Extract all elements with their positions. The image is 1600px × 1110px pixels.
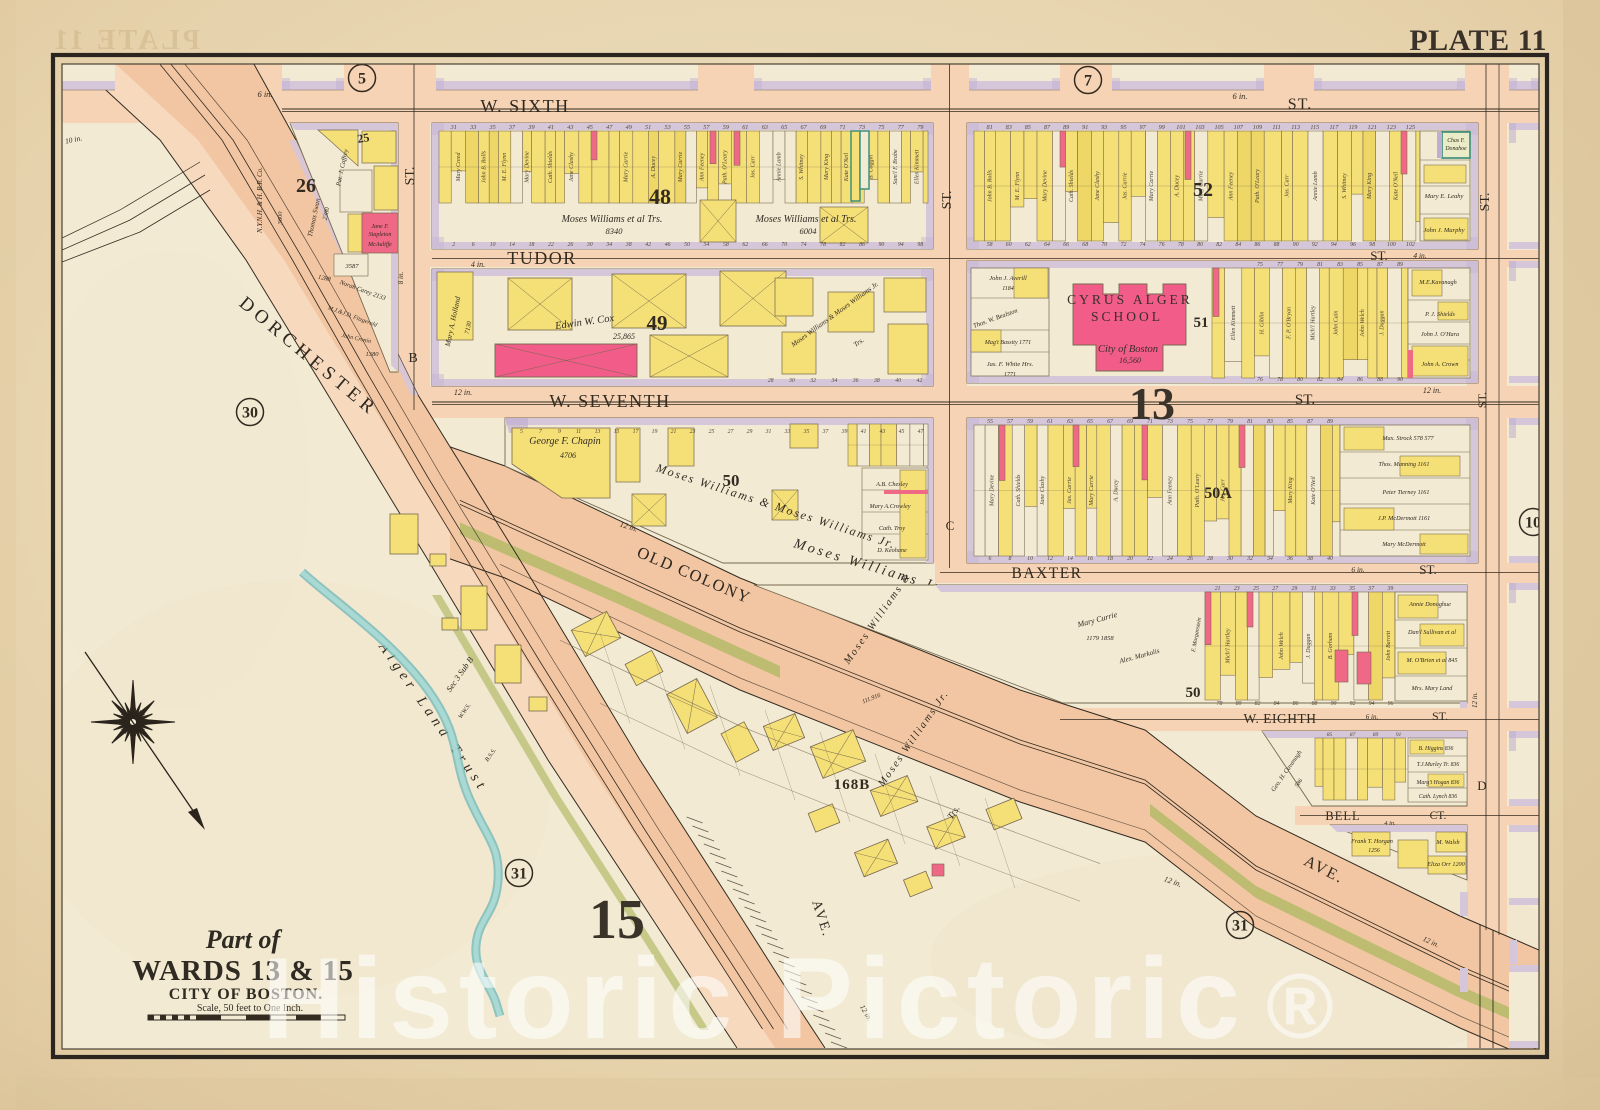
svg-text:6: 6 bbox=[472, 242, 475, 248]
svg-text:Mary Carrie: Mary Carrie bbox=[1149, 170, 1155, 202]
svg-text:F. P. O'Bryan: F. P. O'Bryan bbox=[1286, 307, 1292, 340]
svg-text:34: 34 bbox=[1266, 555, 1273, 562]
svg-text:A. Ducey: A. Ducey bbox=[1114, 479, 1120, 502]
svg-text:119: 119 bbox=[1349, 124, 1358, 131]
svg-text:78: 78 bbox=[1217, 701, 1223, 707]
svg-text:80: 80 bbox=[1236, 701, 1242, 707]
svg-text:45: 45 bbox=[899, 428, 905, 435]
svg-text:40: 40 bbox=[1327, 555, 1333, 562]
svg-text:Mich'l Hartley: Mich'l Hartley bbox=[1311, 305, 1317, 341]
svg-text:ST.: ST. bbox=[940, 191, 955, 210]
svg-text:55: 55 bbox=[684, 124, 690, 131]
svg-text:121: 121 bbox=[1368, 124, 1377, 131]
svg-text:28: 28 bbox=[1207, 556, 1213, 562]
svg-text:85: 85 bbox=[1357, 262, 1363, 268]
svg-text:78: 78 bbox=[1277, 377, 1283, 383]
svg-text:51: 51 bbox=[645, 124, 651, 131]
svg-text:Cath. Troy: Cath. Troy bbox=[879, 525, 905, 532]
svg-text:Ann Feeney: Ann Feeney bbox=[700, 152, 706, 182]
svg-text:12 in.: 12 in. bbox=[454, 388, 472, 397]
svg-text:Stapleton: Stapleton bbox=[369, 232, 392, 238]
svg-text:John B. Rolls: John B. Rolls bbox=[481, 150, 487, 183]
svg-text:Cath. Shields: Cath. Shields bbox=[548, 150, 554, 183]
svg-text:55: 55 bbox=[987, 419, 993, 425]
svg-text:96: 96 bbox=[1350, 242, 1356, 248]
svg-text:105: 105 bbox=[1214, 124, 1223, 131]
svg-text:Mary King: Mary King bbox=[824, 154, 830, 181]
svg-text:80: 80 bbox=[1197, 242, 1203, 248]
svg-text:Mich'l Hartley: Mich'l Hartley bbox=[1225, 628, 1231, 664]
svg-text:Dan'l Sullivan et al: Dan'l Sullivan et al bbox=[1407, 629, 1456, 636]
svg-text:W. SIXTH: W. SIXTH bbox=[480, 96, 569, 116]
svg-text:50: 50 bbox=[684, 242, 690, 248]
svg-text:18: 18 bbox=[1107, 556, 1113, 562]
svg-text:Jos. Carr: Jos. Carr bbox=[750, 155, 756, 178]
svg-text:Kate O'Neil: Kate O'Neil bbox=[1394, 171, 1400, 201]
svg-text:33: 33 bbox=[1329, 586, 1336, 592]
svg-text:ST.: ST. bbox=[1432, 709, 1448, 723]
svg-text:ST.: ST. bbox=[1478, 193, 1493, 212]
svg-text:Mary Devine: Mary Devine bbox=[1042, 170, 1048, 203]
svg-text:62: 62 bbox=[1025, 242, 1031, 248]
svg-text:69: 69 bbox=[820, 124, 826, 131]
svg-text:75: 75 bbox=[1187, 419, 1193, 425]
svg-text:Eliza Orr 1200: Eliza Orr 1200 bbox=[1426, 861, 1465, 868]
svg-text:J.P. McDermott 1161: J.P. McDermott 1161 bbox=[1378, 515, 1430, 522]
svg-text:Mrs. Mary Land: Mrs. Mary Land bbox=[1411, 685, 1454, 692]
svg-text:12 in.: 12 in. bbox=[1471, 692, 1479, 708]
svg-text:63: 63 bbox=[1067, 419, 1073, 425]
svg-text:20: 20 bbox=[1127, 556, 1133, 562]
svg-text:McAuliffe: McAuliffe bbox=[367, 241, 392, 248]
svg-text:40: 40 bbox=[895, 377, 901, 384]
svg-text:Peter Tierney 1161: Peter Tierney 1161 bbox=[1382, 489, 1430, 496]
svg-text:30: 30 bbox=[586, 242, 593, 248]
svg-text:Ellen Kimmett: Ellen Kimmett bbox=[1231, 305, 1237, 341]
svg-text:26: 26 bbox=[1187, 556, 1193, 562]
svg-text:74: 74 bbox=[1140, 241, 1146, 248]
svg-text:91: 91 bbox=[1396, 732, 1402, 738]
svg-text:36: 36 bbox=[852, 378, 859, 384]
svg-text:91: 91 bbox=[1082, 124, 1088, 131]
svg-text:32: 32 bbox=[809, 378, 816, 384]
svg-text:86: 86 bbox=[859, 242, 865, 248]
svg-text:29: 29 bbox=[747, 429, 753, 435]
svg-text:ST.: ST. bbox=[403, 167, 418, 186]
svg-text:George F. Chapin: George F. Chapin bbox=[529, 436, 600, 447]
svg-text:Mary E. Leahy: Mary E. Leahy bbox=[1424, 193, 1464, 200]
svg-text:79: 79 bbox=[917, 124, 923, 131]
svg-text:ST.: ST. bbox=[1288, 96, 1312, 113]
svg-text:Donahoe: Donahoe bbox=[1444, 146, 1467, 152]
svg-text:100: 100 bbox=[1387, 242, 1396, 248]
svg-text:83: 83 bbox=[1267, 419, 1273, 425]
svg-text:84: 84 bbox=[1337, 376, 1343, 383]
svg-text:6 in.: 6 in. bbox=[1232, 91, 1247, 101]
svg-text:43: 43 bbox=[567, 124, 573, 131]
svg-text:79: 79 bbox=[1297, 262, 1303, 268]
svg-text:29: 29 bbox=[1292, 586, 1298, 592]
svg-text:48: 48 bbox=[649, 184, 671, 209]
svg-text:13: 13 bbox=[1129, 378, 1175, 429]
svg-text:Moses Williams et al Trs.: Moses Williams et al Trs. bbox=[755, 214, 857, 225]
svg-text:Cath. Shields: Cath. Shields bbox=[1069, 169, 1075, 202]
svg-text:1771: 1771 bbox=[1004, 372, 1016, 378]
svg-text:7: 7 bbox=[1084, 72, 1092, 89]
svg-text:5: 5 bbox=[520, 429, 523, 435]
svg-text:90: 90 bbox=[1331, 701, 1337, 707]
svg-text:Mary Devine: Mary Devine bbox=[989, 474, 995, 507]
svg-text:83: 83 bbox=[1006, 124, 1012, 131]
svg-text:68: 68 bbox=[1082, 242, 1088, 248]
svg-text:97: 97 bbox=[1140, 124, 1147, 131]
svg-text:96: 96 bbox=[1388, 701, 1394, 707]
svg-text:61: 61 bbox=[1047, 419, 1053, 425]
svg-text:49: 49 bbox=[626, 124, 632, 131]
svg-text:84: 84 bbox=[1235, 241, 1241, 248]
svg-text:101: 101 bbox=[1176, 124, 1185, 131]
svg-text:73: 73 bbox=[859, 124, 865, 131]
svg-text:37: 37 bbox=[1367, 586, 1375, 592]
svg-text:63: 63 bbox=[762, 124, 768, 131]
svg-text:32: 32 bbox=[1246, 556, 1253, 562]
svg-text:89: 89 bbox=[1397, 262, 1403, 268]
svg-text:D: D bbox=[1477, 778, 1486, 793]
svg-text:SCHOOL: SCHOOL bbox=[1091, 309, 1163, 324]
svg-text:54: 54 bbox=[704, 241, 710, 248]
svg-text:John A. Crown: John A. Crown bbox=[1422, 361, 1459, 368]
svg-text:34: 34 bbox=[605, 241, 612, 248]
svg-text:2: 2 bbox=[452, 242, 455, 248]
svg-text:10: 10 bbox=[1027, 556, 1033, 562]
svg-text:99: 99 bbox=[1159, 124, 1165, 131]
svg-text:41: 41 bbox=[861, 428, 867, 435]
svg-text:1179 1858: 1179 1858 bbox=[1086, 635, 1114, 642]
svg-text:39: 39 bbox=[527, 124, 534, 131]
svg-text:A. Ducey: A. Ducey bbox=[1174, 175, 1180, 198]
svg-text:62: 62 bbox=[742, 242, 748, 248]
svg-text:70: 70 bbox=[781, 242, 787, 248]
svg-text:CT.: CT. bbox=[1430, 810, 1447, 822]
svg-text:M. E. Flynn: M. E. Flynn bbox=[502, 153, 508, 183]
svg-text:93: 93 bbox=[1101, 124, 1107, 131]
svg-text:31: 31 bbox=[450, 124, 457, 131]
svg-text:John B. Rolls: John B. Rolls bbox=[988, 169, 994, 202]
svg-text:N.Y.N.H. & H. R.R. Co.: N.Y.N.H. & H. R.R. Co. bbox=[256, 167, 264, 234]
svg-text:49: 49 bbox=[647, 311, 668, 335]
svg-text:81: 81 bbox=[1317, 262, 1323, 268]
svg-text:123: 123 bbox=[1387, 124, 1396, 131]
svg-text:113: 113 bbox=[1291, 124, 1300, 131]
svg-text:88: 88 bbox=[1377, 377, 1383, 383]
svg-text:39: 39 bbox=[1387, 586, 1394, 592]
svg-text:Jos. Carr: Jos. Carr bbox=[1285, 174, 1291, 197]
svg-text:B. Gorham: B. Gorham bbox=[1328, 632, 1334, 659]
svg-text:ST.: ST. bbox=[1475, 392, 1489, 408]
svg-text:95: 95 bbox=[1120, 124, 1126, 131]
svg-text:9: 9 bbox=[558, 429, 561, 435]
svg-text:71: 71 bbox=[839, 124, 845, 131]
svg-text:50: 50 bbox=[1186, 685, 1201, 701]
svg-text:87: 87 bbox=[1350, 732, 1356, 738]
svg-text:31: 31 bbox=[1232, 917, 1248, 934]
svg-text:P. J. Shields: P. J. Shields bbox=[1424, 311, 1455, 318]
svg-text:M. E. Flynn: M. E. Flynn bbox=[1015, 172, 1021, 202]
svg-text:Kate O'Neil: Kate O'Neil bbox=[844, 152, 850, 182]
svg-text:16: 16 bbox=[1087, 556, 1093, 562]
svg-text:111: 111 bbox=[1272, 124, 1280, 131]
svg-text:Mary A.Crowley: Mary A.Crowley bbox=[869, 503, 911, 510]
svg-text:89: 89 bbox=[1373, 732, 1379, 738]
svg-text:72: 72 bbox=[1121, 242, 1127, 248]
svg-text:85: 85 bbox=[1287, 419, 1293, 425]
svg-text:M.E.Kavanagh: M.E.Kavanagh bbox=[1418, 279, 1456, 286]
svg-text:ST.: ST. bbox=[1295, 392, 1315, 408]
svg-text:64: 64 bbox=[1044, 241, 1050, 248]
svg-text:5: 5 bbox=[358, 70, 366, 87]
svg-text:22: 22 bbox=[1147, 556, 1153, 562]
svg-text:26: 26 bbox=[296, 175, 316, 197]
svg-text:8: 8 bbox=[1009, 556, 1012, 562]
svg-text:Cath. Lynch 836: Cath. Lynch 836 bbox=[1419, 794, 1457, 800]
svg-text:6 in.: 6 in. bbox=[257, 89, 272, 99]
svg-text:®: ® bbox=[1266, 956, 1334, 1058]
svg-text:75: 75 bbox=[878, 124, 884, 131]
svg-text:H. Giblin: H. Giblin bbox=[1259, 312, 1265, 336]
svg-text:30: 30 bbox=[242, 404, 258, 421]
svg-text:125: 125 bbox=[1406, 124, 1415, 131]
svg-text:John J. Murphy: John J. Murphy bbox=[1424, 227, 1465, 234]
svg-text:1184: 1184 bbox=[1002, 285, 1014, 292]
svg-text:Mary King: Mary King bbox=[1367, 173, 1373, 200]
svg-text:82: 82 bbox=[1255, 701, 1261, 707]
svg-text:89: 89 bbox=[1327, 419, 1333, 425]
svg-text:85: 85 bbox=[1327, 732, 1333, 738]
svg-text:3600: 3600 bbox=[277, 211, 284, 226]
svg-text:94: 94 bbox=[898, 241, 904, 248]
svg-text:70: 70 bbox=[1101, 242, 1107, 248]
svg-text:4706: 4706 bbox=[560, 451, 576, 460]
svg-text:12 in.: 12 in. bbox=[1423, 386, 1441, 395]
svg-text:1256: 1256 bbox=[1368, 848, 1380, 854]
svg-text:66: 66 bbox=[762, 242, 768, 248]
svg-text:107: 107 bbox=[1234, 124, 1244, 131]
svg-text:16,560: 16,560 bbox=[1119, 356, 1141, 365]
svg-text:John J. O'Hara: John J. O'Hara bbox=[1421, 331, 1459, 338]
svg-text:25: 25 bbox=[1253, 586, 1259, 592]
svg-text:59: 59 bbox=[1027, 419, 1033, 425]
svg-text:89: 89 bbox=[1063, 124, 1069, 131]
svg-text:37: 37 bbox=[822, 429, 830, 435]
svg-text:115: 115 bbox=[1310, 124, 1319, 131]
svg-text:52: 52 bbox=[1193, 179, 1213, 201]
svg-text:C: C bbox=[946, 518, 955, 533]
svg-text:109: 109 bbox=[1253, 124, 1262, 131]
svg-text:3587: 3587 bbox=[345, 263, 360, 270]
svg-text:8 in.: 8 in. bbox=[397, 272, 405, 285]
svg-text:Mary Carrie: Mary Carrie bbox=[1089, 475, 1095, 507]
svg-text:42: 42 bbox=[645, 241, 651, 248]
svg-text:86: 86 bbox=[1255, 242, 1261, 248]
svg-text:Annie Lamb: Annie Lamb bbox=[777, 152, 783, 182]
svg-text:Frank T. Horgan: Frank T. Horgan bbox=[1350, 838, 1393, 845]
svg-text:14: 14 bbox=[509, 241, 515, 248]
svg-text:39: 39 bbox=[841, 429, 848, 435]
svg-text:43: 43 bbox=[880, 428, 886, 435]
svg-text:57: 57 bbox=[703, 124, 710, 131]
svg-text:Thos. Manning 1161: Thos. Manning 1161 bbox=[1379, 461, 1430, 468]
svg-text:78: 78 bbox=[820, 242, 826, 248]
svg-text:83: 83 bbox=[1337, 262, 1343, 268]
svg-text:117: 117 bbox=[1329, 124, 1339, 131]
svg-text:33: 33 bbox=[469, 124, 476, 131]
svg-text:25,865: 25,865 bbox=[613, 332, 635, 341]
svg-text:76: 76 bbox=[1257, 377, 1263, 383]
svg-text:1380: 1380 bbox=[366, 351, 380, 358]
svg-text:28: 28 bbox=[768, 378, 774, 384]
svg-text:ST.: ST. bbox=[1419, 562, 1436, 577]
svg-text:75: 75 bbox=[1257, 262, 1263, 268]
svg-text:24: 24 bbox=[1167, 555, 1173, 562]
svg-text:59: 59 bbox=[723, 124, 729, 131]
svg-text:21: 21 bbox=[671, 429, 677, 435]
svg-text:15: 15 bbox=[614, 429, 620, 435]
svg-text:19: 19 bbox=[652, 429, 658, 435]
svg-text:50A: 50A bbox=[1204, 485, 1232, 502]
svg-text:31: 31 bbox=[511, 865, 527, 882]
svg-text:ST.: ST. bbox=[1370, 248, 1387, 263]
svg-text:A.B. Chesley: A.B. Chesley bbox=[875, 481, 908, 488]
svg-text:B: B bbox=[408, 351, 417, 366]
svg-text:25: 25 bbox=[356, 130, 370, 146]
svg-text:Annie Lamb: Annie Lamb bbox=[1313, 171, 1319, 201]
svg-text:Annie Donoghue: Annie Donoghue bbox=[1408, 601, 1451, 608]
svg-text:Mary Carrie: Mary Carrie bbox=[624, 151, 630, 183]
svg-text:66: 66 bbox=[1063, 242, 1069, 248]
svg-text:74: 74 bbox=[801, 241, 807, 248]
svg-text:82: 82 bbox=[1216, 242, 1222, 248]
svg-text:Path. O'Leary: Path. O'Leary bbox=[1195, 473, 1201, 508]
svg-text:88: 88 bbox=[1274, 242, 1280, 248]
svg-text:W. EIGHTH: W. EIGHTH bbox=[1244, 711, 1317, 726]
svg-text:82: 82 bbox=[840, 242, 846, 248]
svg-text:10: 10 bbox=[490, 242, 496, 248]
svg-text:6 in.: 6 in. bbox=[1351, 565, 1364, 574]
svg-text:61: 61 bbox=[742, 124, 748, 131]
svg-text:60: 60 bbox=[1006, 242, 1012, 248]
svg-text:23: 23 bbox=[1234, 586, 1240, 592]
svg-text:94: 94 bbox=[1369, 700, 1375, 707]
svg-text:8340: 8340 bbox=[606, 226, 624, 236]
svg-text:6 in.: 6 in. bbox=[1366, 713, 1379, 721]
svg-text:85: 85 bbox=[1025, 124, 1031, 131]
svg-text:168B: 168B bbox=[834, 777, 871, 793]
svg-text:Mary McDermott: Mary McDermott bbox=[1381, 541, 1426, 548]
svg-text:PLATE 11: PLATE 11 bbox=[51, 25, 200, 56]
svg-text:6: 6 bbox=[989, 556, 992, 562]
svg-text:98: 98 bbox=[917, 242, 923, 248]
svg-text:12: 12 bbox=[1047, 556, 1053, 562]
svg-text:78: 78 bbox=[1178, 242, 1184, 248]
svg-text:88: 88 bbox=[1312, 701, 1318, 707]
svg-text:33: 33 bbox=[784, 429, 791, 435]
svg-text:W. SEVENTH: W. SEVENTH bbox=[549, 391, 670, 411]
svg-text:CYRUS ALGER: CYRUS ALGER bbox=[1067, 292, 1193, 307]
svg-text:38: 38 bbox=[625, 242, 632, 248]
svg-text:58: 58 bbox=[723, 242, 729, 248]
svg-text:21: 21 bbox=[1215, 586, 1221, 592]
svg-text:30: 30 bbox=[1226, 556, 1233, 562]
svg-text:103: 103 bbox=[1195, 124, 1204, 131]
svg-text:36: 36 bbox=[1286, 556, 1293, 562]
svg-text:86: 86 bbox=[1293, 701, 1299, 707]
svg-text:42: 42 bbox=[917, 377, 923, 384]
svg-text:Ann Feeney: Ann Feeney bbox=[1228, 171, 1234, 201]
svg-text:Cath. Shields: Cath. Shields bbox=[1016, 474, 1022, 507]
svg-text:M. O'Brien et al 845: M. O'Brien et al 845 bbox=[1406, 657, 1458, 664]
svg-text:PLATE 11: PLATE 11 bbox=[1409, 24, 1547, 57]
svg-text:M. Walsh: M. Walsh bbox=[1435, 839, 1459, 846]
svg-text:Path. O'Leary: Path. O'Leary bbox=[1255, 169, 1261, 204]
svg-text:87: 87 bbox=[1044, 124, 1051, 131]
svg-text:Historic Pictoric: Historic Pictoric bbox=[262, 935, 1246, 1063]
svg-text:25: 25 bbox=[709, 429, 715, 435]
svg-text:41: 41 bbox=[548, 124, 554, 131]
svg-text:86: 86 bbox=[1357, 377, 1363, 383]
svg-text:Moses Williams et al Trs.: Moses Williams et al Trs. bbox=[561, 214, 663, 225]
svg-text:35: 35 bbox=[1348, 586, 1355, 592]
svg-text:47: 47 bbox=[606, 124, 613, 131]
svg-text:67: 67 bbox=[801, 124, 808, 131]
svg-text:4 in.: 4 in. bbox=[471, 260, 485, 269]
svg-text:30: 30 bbox=[788, 378, 795, 384]
svg-text:13: 13 bbox=[595, 429, 601, 435]
svg-text:TUDOR: TUDOR bbox=[507, 248, 577, 268]
svg-text:B. Higgins 836: B. Higgins 836 bbox=[1419, 746, 1454, 752]
svg-text:Jane F.: Jane F. bbox=[371, 224, 388, 230]
svg-text:53: 53 bbox=[665, 124, 671, 131]
svg-text:35: 35 bbox=[803, 429, 810, 435]
svg-text:Marg't Hogan 836: Marg't Hogan 836 bbox=[1416, 780, 1460, 786]
svg-text:Mary Currie: Mary Currie bbox=[678, 151, 684, 183]
svg-text:Path. O'Leary: Path. O'Leary bbox=[723, 150, 729, 185]
svg-text:90: 90 bbox=[1293, 242, 1299, 248]
svg-text:79: 79 bbox=[1227, 419, 1233, 425]
svg-text:35: 35 bbox=[489, 124, 496, 131]
svg-text:37: 37 bbox=[508, 124, 516, 131]
svg-text:82: 82 bbox=[1317, 377, 1323, 383]
svg-text:45: 45 bbox=[587, 124, 593, 131]
svg-text:77: 77 bbox=[898, 124, 905, 131]
svg-text:94: 94 bbox=[1331, 241, 1337, 248]
svg-text:11: 11 bbox=[576, 429, 581, 435]
svg-text:76: 76 bbox=[1159, 242, 1165, 248]
svg-text:80: 80 bbox=[1297, 377, 1303, 383]
svg-text:92: 92 bbox=[1312, 242, 1318, 248]
svg-text:31: 31 bbox=[1310, 586, 1317, 592]
svg-text:Chas F.: Chas F. bbox=[1447, 138, 1465, 144]
svg-text:14: 14 bbox=[1067, 555, 1073, 562]
svg-text:City of Boston: City of Boston bbox=[1098, 344, 1158, 355]
svg-text:38: 38 bbox=[1306, 556, 1313, 562]
svg-text:Max. Strock 578 577: Max. Strock 578 577 bbox=[1381, 435, 1434, 442]
svg-text:6004: 6004 bbox=[800, 226, 818, 236]
svg-text:John J. Averill: John J. Averill bbox=[989, 275, 1027, 282]
svg-text:90: 90 bbox=[879, 242, 885, 248]
svg-text:46: 46 bbox=[665, 241, 671, 248]
svg-text:58: 58 bbox=[987, 242, 993, 248]
svg-text:102: 102 bbox=[1406, 242, 1415, 248]
